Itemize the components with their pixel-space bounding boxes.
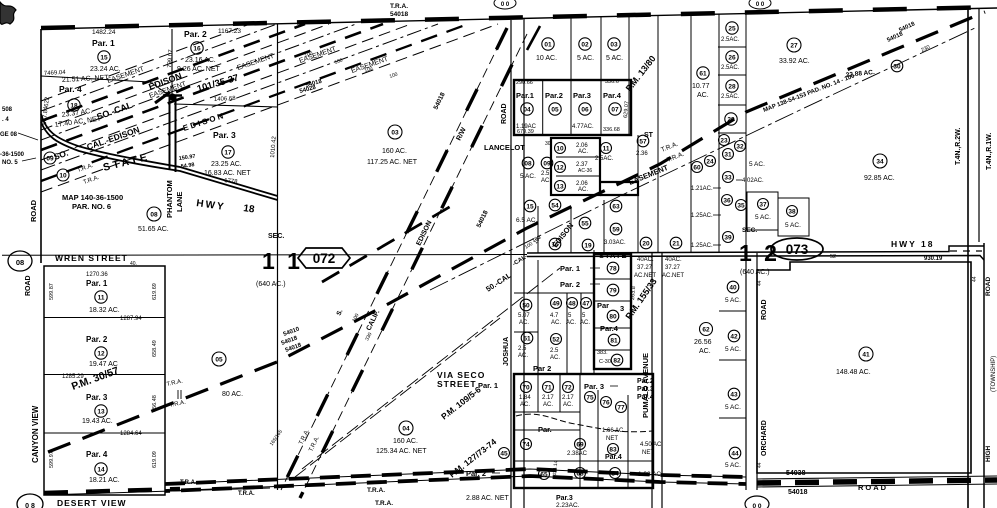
svg-text:75: 75 [586, 394, 594, 401]
svg-text:AC.: AC. [541, 178, 551, 184]
svg-text:Par.4: Par.4 [600, 324, 619, 333]
svg-text:AC-36: AC-36 [578, 168, 592, 174]
svg-text:AC.: AC. [520, 402, 530, 408]
svg-text:51: 51 [523, 335, 531, 342]
svg-text:57: 57 [639, 138, 647, 145]
svg-text:61: 61 [699, 70, 707, 77]
svg-text:32: 32 [736, 143, 744, 150]
svg-text:AC.: AC. [519, 320, 529, 326]
svg-text:Par. 2: Par. 2 [184, 29, 207, 39]
svg-text:Par 2: Par 2 [533, 364, 551, 373]
svg-text:T.R.A.: T.R.A. [238, 491, 255, 497]
svg-text:2.5AC.: 2.5AC. [721, 65, 740, 71]
svg-text:0 0: 0 0 [752, 503, 761, 508]
svg-text:148.48 AC.: 148.48 AC. [836, 369, 871, 376]
svg-text:44: 44 [972, 276, 978, 282]
svg-text:Par. 1: Par. 1 [478, 381, 498, 390]
svg-text:ROAD: ROAD [858, 483, 888, 492]
svg-text:05: 05 [215, 356, 223, 363]
svg-text:Par.1: Par.1 [516, 91, 534, 100]
svg-text:7469.04: 7469.04 [44, 70, 67, 77]
svg-text:Par.2: Par.2 [637, 378, 654, 385]
svg-text:. 4: . 4 [2, 117, 9, 123]
svg-text:Par. 4: Par. 4 [59, 84, 82, 94]
svg-text:290.66: 290.66 [516, 80, 533, 86]
svg-text:AC.NET: AC.NET [662, 273, 684, 279]
svg-text:79: 79 [609, 287, 617, 294]
svg-text:08: 08 [16, 258, 24, 267]
svg-text:383.: 383. [597, 350, 608, 356]
svg-text:70: 70 [522, 384, 530, 391]
svg-text:LANE: LANE [175, 192, 184, 212]
svg-text:160 AC.: 160 AC. [393, 438, 418, 445]
svg-text:78: 78 [609, 265, 617, 272]
svg-text:14: 14 [97, 466, 105, 473]
svg-text:Par.4: Par.4 [603, 91, 622, 100]
svg-text:4.7: 4.7 [550, 313, 559, 319]
svg-text:69: 69 [576, 441, 584, 448]
svg-text:33.92 AC.: 33.92 AC. [779, 58, 810, 65]
svg-text:619.69: 619.69 [152, 283, 158, 300]
svg-text:SEC.: SEC. [268, 233, 284, 240]
svg-text:2.5: 2.5 [550, 348, 559, 354]
svg-text:10 AC.: 10 AC. [536, 55, 557, 62]
svg-text:1.21AC.: 1.21AC. [691, 186, 713, 192]
svg-text:12: 12 [556, 164, 564, 171]
svg-text:23.24 AC.: 23.24 AC. [90, 66, 121, 73]
svg-text:52: 52 [830, 254, 836, 260]
svg-text:5 AC.: 5 AC. [606, 55, 623, 62]
svg-text:72: 72 [564, 384, 572, 391]
svg-text:17: 17 [224, 149, 232, 156]
svg-text:3.03AC.: 3.03AC. [604, 240, 626, 246]
svg-text:16: 16 [193, 45, 201, 52]
svg-text:20: 20 [642, 240, 650, 247]
svg-text:ST: ST [644, 132, 654, 139]
svg-text:JOSHUA: JOSHUA [503, 337, 510, 366]
svg-text:52: 52 [552, 336, 560, 343]
svg-text:08: 08 [524, 160, 532, 167]
svg-text:1.66 AC: 1.66 AC [602, 428, 624, 434]
svg-text:35: 35 [737, 202, 745, 209]
svg-text:599.97: 599.97 [49, 451, 55, 468]
svg-text:02: 02 [581, 41, 589, 48]
svg-text:47: 47 [582, 300, 590, 307]
svg-text:54018: 54018 [788, 489, 808, 496]
svg-text:336.6: 336.6 [605, 79, 619, 85]
svg-text:40AC.: 40AC. [665, 257, 682, 263]
svg-text:13: 13 [556, 183, 564, 190]
svg-text:50: 50 [522, 302, 530, 309]
svg-text:-36-1500: -36-1500 [0, 152, 25, 158]
svg-text:HWY 18: HWY 18 [891, 239, 935, 249]
svg-text:5.07: 5.07 [518, 313, 530, 319]
svg-text:1482.24: 1482.24 [92, 29, 116, 36]
svg-text:MAP 140-36-1500: MAP 140-36-1500 [62, 193, 123, 202]
svg-text:Par. 3: Par. 3 [213, 130, 236, 140]
svg-text:1.25AC.: 1.25AC. [691, 243, 713, 249]
svg-text:2.38AC: 2.38AC [567, 451, 588, 457]
svg-text:4.50 AC.: 4.50 AC. [640, 442, 663, 448]
svg-text:599.87: 599.87 [49, 283, 55, 300]
svg-text:11: 11 [98, 294, 105, 301]
svg-text:HIGH: HIGH [985, 445, 992, 462]
svg-text:ORCHARD: ORCHARD [761, 420, 768, 456]
svg-text:33: 33 [724, 174, 732, 181]
svg-text:92.85 AC.: 92.85 AC. [864, 175, 895, 182]
svg-text:44: 44 [731, 450, 739, 457]
svg-text:29: 29 [727, 116, 735, 123]
svg-text:77: 77 [617, 404, 625, 411]
svg-text:43: 43 [730, 391, 738, 398]
svg-text:25: 25 [728, 25, 736, 32]
svg-text:07: 07 [611, 106, 619, 113]
svg-text:10: 10 [556, 145, 564, 152]
svg-text:83: 83 [609, 446, 617, 453]
svg-text:26: 26 [728, 54, 736, 61]
svg-text:18.32 AC.: 18.32 AC. [89, 307, 120, 314]
svg-text:1287.94: 1287.94 [120, 316, 142, 322]
svg-text:073: 073 [786, 242, 809, 257]
svg-text:19.43 AC.: 19.43 AC. [82, 418, 113, 425]
svg-text:13: 13 [97, 408, 105, 415]
svg-text:AC.: AC. [563, 402, 573, 408]
svg-text:STREET: STREET [437, 379, 477, 389]
svg-text:LANCELOT: LANCELOT [484, 143, 525, 152]
svg-text:60: 60 [693, 164, 701, 171]
svg-text:DESERT VIEW: DESERT VIEW [57, 498, 127, 508]
svg-text:30: 30 [893, 63, 901, 70]
svg-text:Par. 4: Par. 4 [86, 450, 108, 459]
svg-text:NET: NET [642, 450, 654, 456]
svg-text:42: 42 [730, 333, 738, 340]
svg-text:37.27: 37.27 [665, 265, 681, 271]
svg-text:Par.4: Par.4 [605, 454, 622, 461]
svg-text:10.77: 10.77 [692, 83, 710, 90]
svg-text:28: 28 [728, 83, 736, 90]
svg-text:09: 09 [46, 155, 54, 162]
svg-text:21: 21 [672, 240, 680, 247]
svg-text:1284.64: 1284.64 [120, 431, 142, 437]
svg-text:59: 59 [612, 226, 620, 233]
svg-text:ROAD: ROAD [501, 103, 508, 124]
svg-text:(TOWNSHIP): (TOWNSHIP) [991, 356, 997, 392]
svg-text:18: 18 [243, 203, 256, 216]
svg-text:06: 06 [581, 106, 589, 113]
svg-text:44: 44 [757, 280, 763, 286]
svg-text:11: 11 [603, 145, 610, 152]
svg-text:36: 36 [723, 197, 731, 204]
svg-text:5 AC.: 5 AC. [755, 214, 771, 221]
svg-text:2.36: 2.36 [636, 151, 648, 157]
svg-text:619.09: 619.09 [152, 451, 158, 468]
svg-text:2.5AC.: 2.5AC. [721, 37, 740, 43]
svg-text:1.84: 1.84 [519, 395, 531, 401]
svg-text:2.5: 2.5 [518, 346, 527, 352]
svg-text:2.5AC.: 2.5AC. [721, 94, 740, 100]
svg-text:15: 15 [100, 54, 108, 61]
svg-text:AC.: AC. [578, 149, 588, 155]
svg-text:Par.2: Par.2 [545, 91, 563, 100]
svg-text:5 AC.: 5 AC. [725, 404, 741, 411]
svg-text:82: 82 [613, 357, 621, 364]
svg-text:160 AC.: 160 AC. [382, 148, 407, 155]
svg-text:24: 24 [706, 158, 714, 165]
svg-text:C-30: C-30 [599, 359, 611, 365]
svg-text:5 AC.: 5 AC. [749, 161, 765, 168]
svg-text:CANYON VIEW: CANYON VIEW [31, 405, 40, 463]
svg-text:PHANTOM: PHANTOM [165, 180, 174, 218]
svg-text:0 8: 0 8 [25, 503, 35, 508]
svg-text:5 AC.: 5 AC. [577, 55, 594, 62]
svg-text:WREN STREET: WREN STREET [55, 253, 128, 263]
svg-text:4.77AC.: 4.77AC. [572, 124, 594, 130]
svg-text:2.88 AC. NET: 2.88 AC. NET [466, 495, 510, 502]
svg-text:508: 508 [2, 107, 13, 113]
svg-text:38: 38 [788, 208, 796, 215]
svg-text:Par. 2: Par. 2 [560, 280, 580, 289]
svg-text:(640 AC.): (640 AC.) [256, 281, 286, 288]
svg-text:39: 39 [724, 234, 732, 241]
svg-text:04: 04 [402, 425, 410, 432]
svg-text:76: 76 [602, 399, 610, 406]
svg-text:54038: 54038 [786, 470, 806, 477]
svg-text:1270.36: 1270.36 [86, 272, 108, 278]
svg-text:ROAD: ROAD [29, 199, 38, 222]
svg-text:Par. 1: Par. 1 [560, 264, 580, 273]
svg-text:Par. 3: Par. 3 [86, 393, 108, 402]
svg-text:AC.NET: AC.NET [634, 273, 656, 279]
svg-text:19: 19 [584, 242, 592, 249]
svg-text:GE 08: GE 08 [0, 132, 18, 138]
svg-text:01: 01 [544, 41, 552, 48]
svg-text:AC.: AC. [566, 320, 576, 326]
svg-text:6.5 AC.: 6.5 AC. [516, 217, 538, 224]
svg-text:2.5: 2.5 [541, 171, 550, 177]
svg-text:31: 31 [724, 151, 732, 158]
svg-text:PAR. NO. 6: PAR. NO. 6 [72, 202, 111, 211]
svg-text:03: 03 [610, 41, 618, 48]
svg-text:AC.: AC. [699, 348, 711, 355]
svg-text:5 AC.: 5 AC. [785, 222, 801, 229]
svg-text:NET: NET [606, 436, 618, 442]
svg-text:05: 05 [551, 106, 559, 113]
svg-text:1 1: 1 1 [262, 248, 303, 274]
svg-text:0 0: 0 0 [501, 2, 510, 8]
svg-text:09: 09 [543, 160, 551, 167]
svg-text:072: 072 [313, 251, 336, 266]
svg-text:27: 27 [790, 42, 798, 49]
svg-text:AC.: AC. [550, 355, 560, 361]
svg-text:Par. 3: Par. 3 [584, 382, 604, 391]
svg-text:2.17: 2.17 [562, 395, 574, 401]
svg-text:12: 12 [97, 350, 105, 357]
svg-text:71: 71 [544, 384, 552, 391]
svg-text:Par. 1: Par. 1 [86, 279, 108, 288]
svg-text:5 AC.: 5 AC. [520, 173, 536, 180]
svg-text:04: 04 [523, 106, 531, 113]
svg-text:10: 10 [59, 172, 67, 179]
svg-text:AC.: AC. [551, 320, 561, 326]
svg-text:23: 23 [720, 137, 728, 144]
svg-text:T.R.A.: T.R.A. [390, 3, 408, 10]
svg-text:NO. 5: NO. 5 [2, 160, 18, 166]
svg-text:63: 63 [612, 203, 620, 210]
svg-text:Par.3: Par.3 [556, 495, 573, 502]
svg-text:30': 30' [545, 141, 552, 147]
svg-text:2.23AC.: 2.23AC. [556, 502, 580, 508]
svg-text:Par.3: Par.3 [637, 386, 654, 393]
svg-text:ROAD: ROAD [761, 299, 768, 320]
svg-text:T.4N.,R.2W.: T.4N.,R.2W. [955, 128, 962, 165]
svg-text:Par. 2: Par. 2 [86, 335, 108, 344]
svg-text:45: 45 [500, 450, 508, 457]
svg-text:80 AC.: 80 AC. [222, 391, 243, 398]
svg-text:336.68: 336.68 [603, 127, 620, 133]
svg-text:679.39: 679.39 [517, 129, 534, 135]
svg-text:Par: Par [597, 301, 609, 310]
svg-text:62: 62 [702, 326, 710, 333]
svg-text:44: 44 [757, 462, 763, 468]
svg-text:ROAD: ROAD [25, 275, 32, 296]
svg-text:2.5AC.: 2.5AC. [595, 156, 614, 162]
svg-text:55: 55 [581, 220, 589, 227]
svg-text:49: 49 [552, 300, 560, 307]
svg-text:AC.: AC. [518, 353, 528, 359]
svg-text:4.02AC.: 4.02AC. [742, 178, 764, 184]
svg-text:2.17: 2.17 [542, 395, 554, 401]
svg-text:117.25 AC. NET: 117.25 AC. NET [367, 159, 418, 166]
svg-text:3: 3 [620, 304, 624, 313]
svg-text:658.49: 658.49 [152, 340, 158, 357]
svg-text:AC.: AC. [580, 320, 590, 326]
svg-text:08: 08 [150, 211, 158, 218]
svg-text:T.R.A.: T.R.A. [375, 500, 393, 507]
svg-text:37: 37 [759, 201, 767, 208]
svg-text:37.27: 37.27 [637, 265, 653, 271]
svg-text:AC.: AC. [578, 187, 588, 193]
svg-text:125.34 AC. NET: 125.34 AC. NET [376, 448, 427, 455]
svg-text:ROAD: ROAD [985, 277, 992, 296]
svg-text:T.R.A.: T.R.A. [180, 480, 197, 486]
svg-text:5 AC.: 5 AC. [725, 462, 741, 469]
svg-text:41: 41 [862, 351, 870, 358]
svg-text:T.R.A.: T.R.A. [367, 487, 385, 494]
svg-text:AC.: AC. [543, 402, 553, 408]
svg-text:54018: 54018 [390, 11, 408, 18]
svg-text:48: 48 [568, 300, 576, 307]
svg-text:SEC.: SEC. [742, 227, 757, 234]
svg-text:34: 34 [876, 158, 884, 165]
svg-text:81: 81 [610, 337, 618, 344]
svg-text:51.65 AC.: 51.65 AC. [138, 226, 169, 233]
svg-text:Par.3: Par.3 [573, 91, 591, 100]
svg-text:Par.4: Par.4 [637, 394, 654, 401]
svg-text:16: 16 [551, 241, 559, 248]
svg-text:Par.: Par. [538, 425, 552, 434]
svg-text:5 AC.: 5 AC. [725, 346, 741, 353]
svg-text:T.4N.,R.1W.: T.4N.,R.1W. [986, 133, 993, 170]
svg-text:26.56: 26.56 [694, 339, 712, 346]
svg-text:40: 40 [729, 284, 737, 291]
svg-text:0 0: 0 0 [756, 2, 765, 8]
svg-text:15: 15 [526, 203, 534, 210]
svg-text:STATE: STATE [599, 251, 627, 260]
svg-text:930.19: 930.19 [924, 256, 943, 262]
svg-text:18.21 AC.: 18.21 AC. [89, 477, 120, 484]
svg-text:23.25 AC.: 23.25 AC. [211, 161, 242, 168]
svg-text:03: 03 [391, 129, 399, 136]
svg-text:1.25AC.: 1.25AC. [691, 213, 713, 219]
svg-text:54: 54 [551, 202, 559, 209]
svg-text:AC.: AC. [697, 92, 709, 99]
svg-text:80: 80 [609, 313, 617, 320]
svg-text:74: 74 [522, 441, 530, 448]
svg-text:Par. 1: Par. 1 [92, 38, 115, 48]
svg-text:5 AC.: 5 AC. [725, 297, 741, 304]
